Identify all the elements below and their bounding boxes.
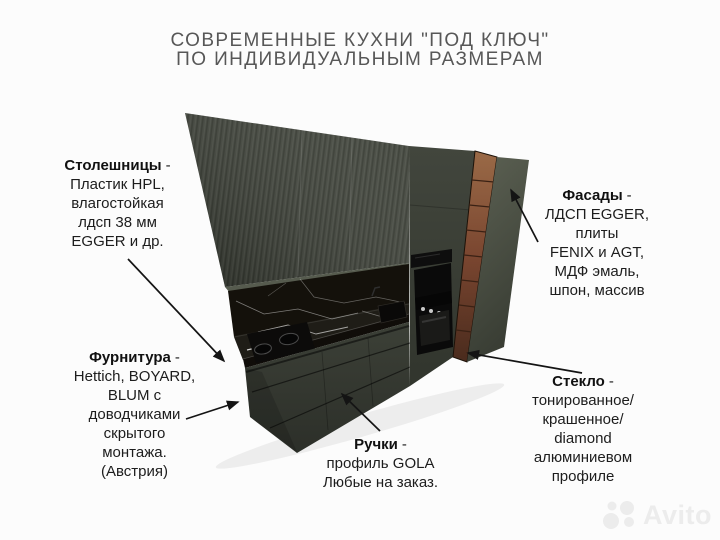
callout-line: EGGER и др. (35, 232, 200, 251)
callout-handles-title: Ручки- (298, 435, 463, 454)
callout-line: крашенное/ (502, 410, 664, 429)
oven-knob (429, 309, 433, 313)
callout-line: монтажа. (42, 443, 227, 462)
callout-countertops: Столешницы- Пластик HPL, влагостойкая лд… (35, 156, 200, 251)
callout-handles: Ручки- профиль GOLA Любые на заказ. (298, 435, 463, 492)
callout-line: шпон, массив (518, 281, 676, 300)
callout-line: Hettich, BOYARD, (42, 367, 227, 386)
callout-line: Пластик HPL, (35, 175, 200, 194)
callout-line: ЛДСП EGGER, (518, 205, 676, 224)
callout-line: плиты (518, 224, 676, 243)
callout-line: (Австрия) (42, 462, 227, 481)
callout-facades: Фасады- ЛДСП EGGER, плиты FENIX и AGT, М… (518, 186, 676, 300)
callout-facades-title: Фасады- (518, 186, 676, 205)
callout-line: МДФ эмаль, (518, 262, 676, 281)
arrow-glass (468, 353, 582, 373)
callout-line: лдсп 38 мм (35, 213, 200, 232)
callout-line: доводчиками (42, 405, 227, 424)
callout-hardware: Фурнитура- Hettich, BOYARD, BLUM с довод… (42, 348, 227, 481)
callout-line: профиль GOLA (298, 454, 463, 473)
ad-canvas: СОВРЕМЕННЫЕ КУХНИ "ПОД КЛЮЧ" ПО ИНДИВИДУ… (0, 0, 720, 540)
arrow-countertops (128, 259, 224, 361)
callout-line: профиле (502, 467, 664, 486)
callout-line: diamond (502, 429, 664, 448)
oven (414, 263, 453, 355)
oven-knob (421, 307, 425, 311)
callout-line: алюминиевом (502, 448, 664, 467)
callout-line: скрытого (42, 424, 227, 443)
avito-watermark: Avito (602, 498, 712, 532)
callout-line: влагостойкая (35, 194, 200, 213)
callout-line: Любые на заказ. (298, 473, 463, 492)
callout-line: тонированное/ (502, 391, 664, 410)
callout-hardware-title: Фурнитура- (42, 348, 227, 367)
avito-logo-icon (602, 498, 638, 532)
callout-line: BLUM с (42, 386, 227, 405)
avito-wordmark: Avito (643, 500, 712, 531)
callout-glass-title: Стекло- (502, 372, 664, 391)
callout-glass: Стекло- тонированное/ крашенное/ diamond… (502, 372, 664, 486)
upper-fluted-cabinets (185, 113, 409, 293)
callout-line: FENIX и AGT, (518, 243, 676, 262)
callout-countertops-title: Столешницы- (35, 156, 200, 175)
